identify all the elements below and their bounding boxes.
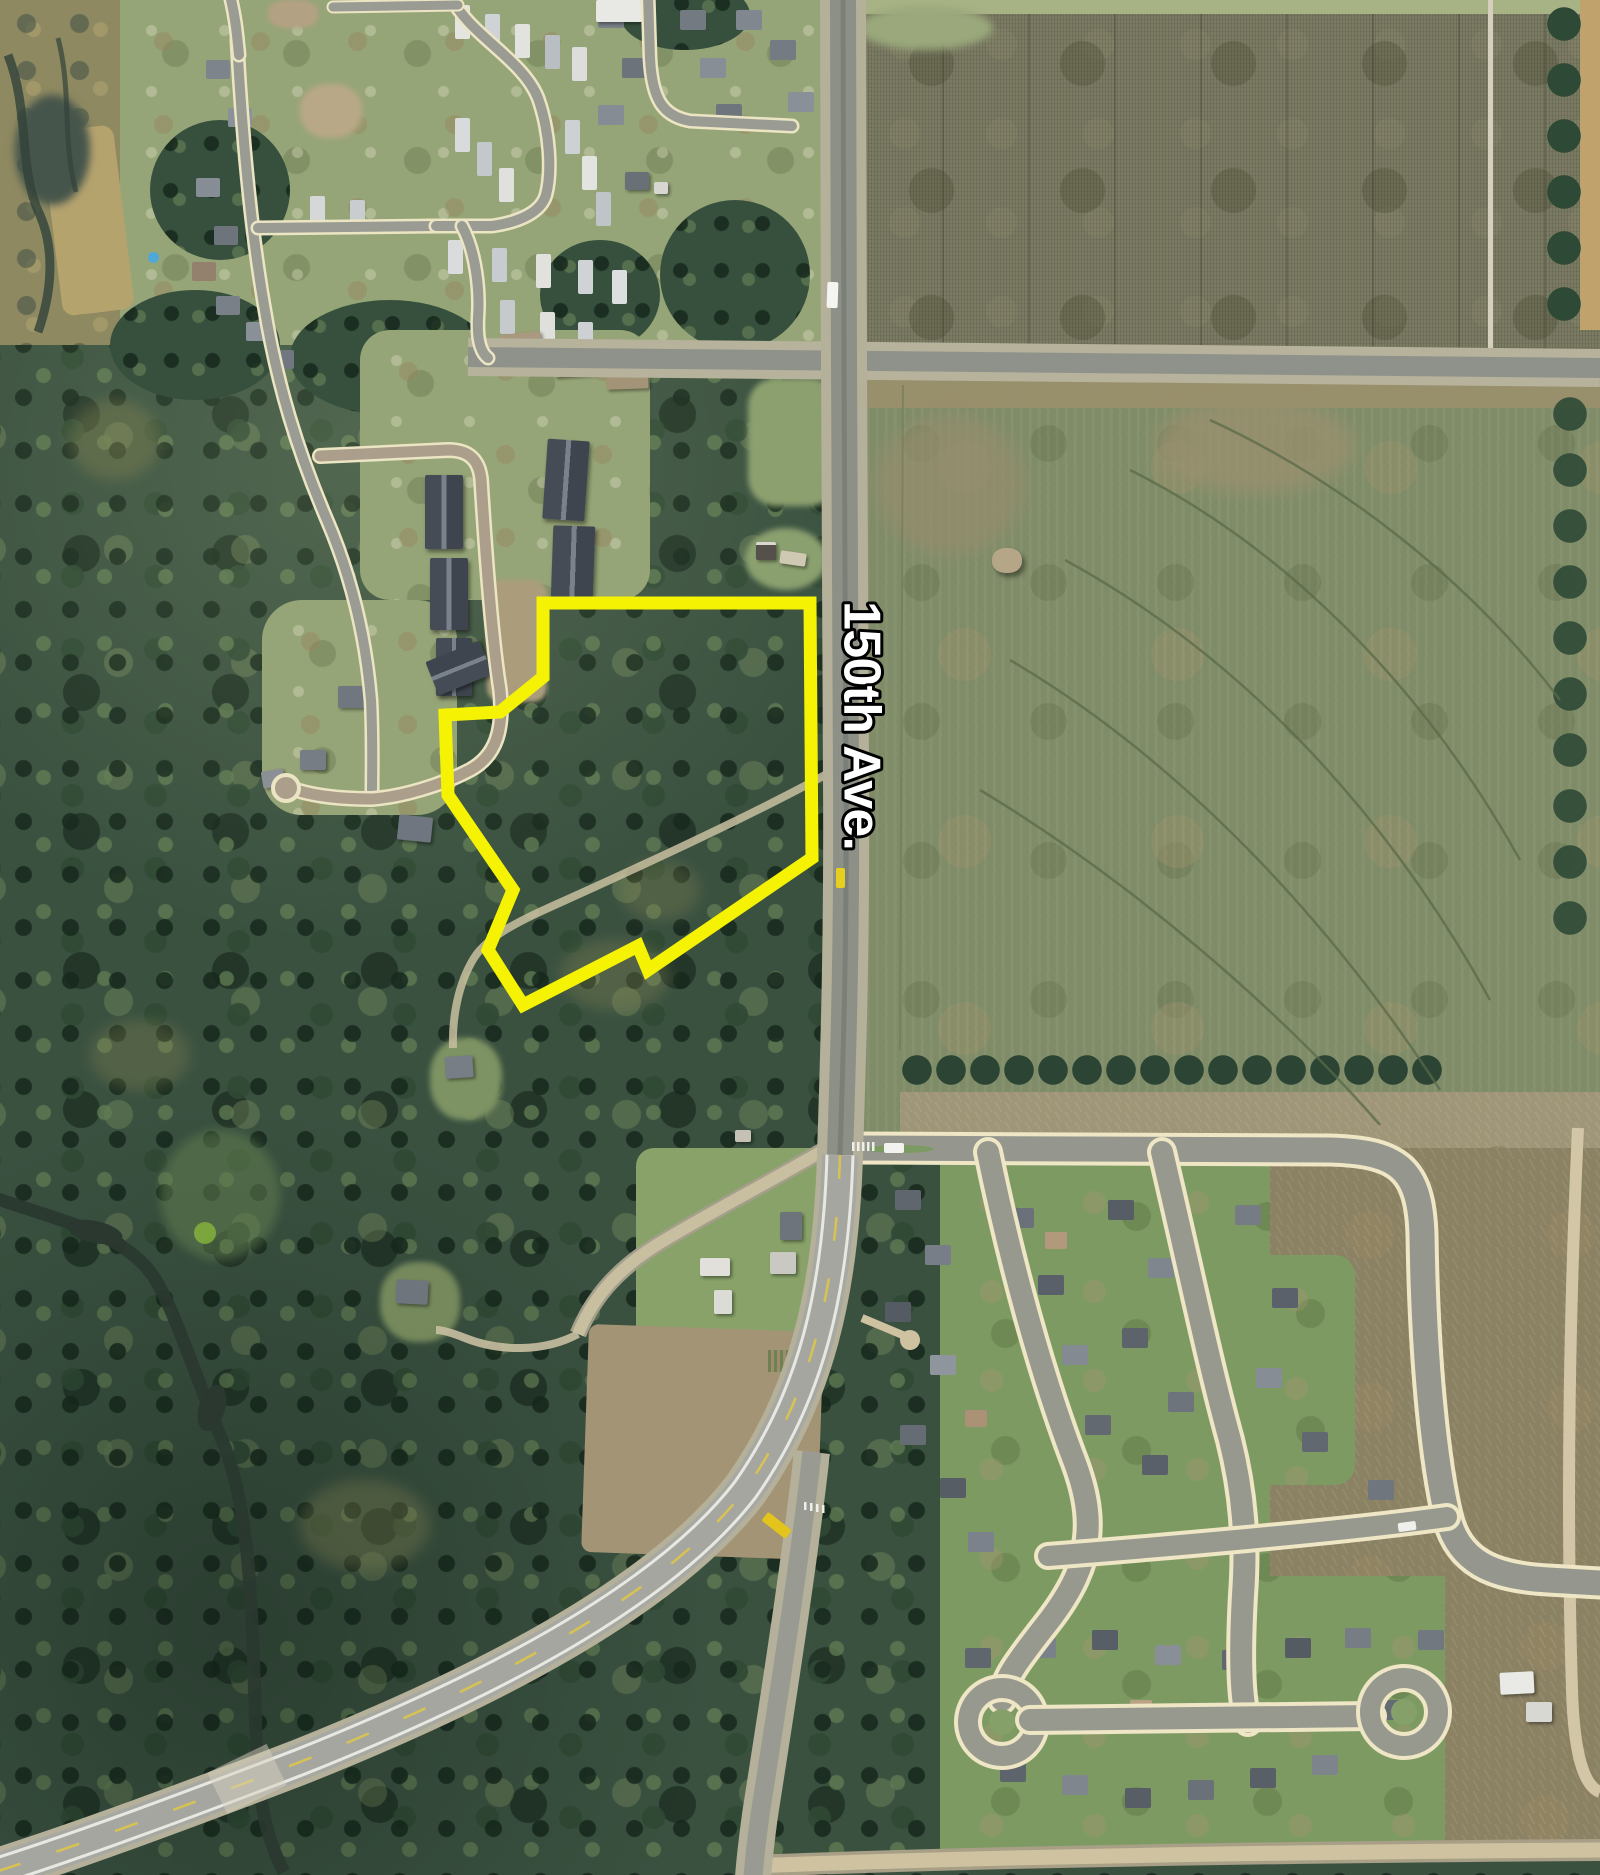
subdivision-streets [968,1152,1447,1756]
main-road-shoulder [0,0,846,1872]
aerial-map: 150th Ave. [0,0,1600,1875]
county-road [468,357,1600,368]
fence-line [900,385,903,1050]
townhome-street [273,450,501,801]
cul-de-sac-island [989,1709,1015,1735]
truck-on-150th [827,282,839,308]
map-linework: 150th Ave. [0,0,1600,1875]
north-subdivision-streets [230,0,792,799]
turnaround [900,1330,920,1350]
south-road [753,1452,812,1875]
algae-patch [194,1222,216,1244]
marsh-channel [58,38,76,192]
cul-de-sac-island [1391,1699,1417,1725]
highway-lanes [0,1155,840,1872]
yellow-vehicle-on-150th [836,868,845,888]
marsh-channel [8,55,50,332]
field-driveway [862,1318,905,1336]
pasture-track-arcs [980,420,1560,1125]
car-on-entrance-road [884,1143,904,1153]
gravel-road [578,1150,824,1334]
main-road-pavement [0,0,846,1872]
road-label-150th-ave: 150th Ave. [832,601,890,851]
section-line-gravel-road [1569,1128,1600,1792]
woods-driveway [436,1330,578,1348]
